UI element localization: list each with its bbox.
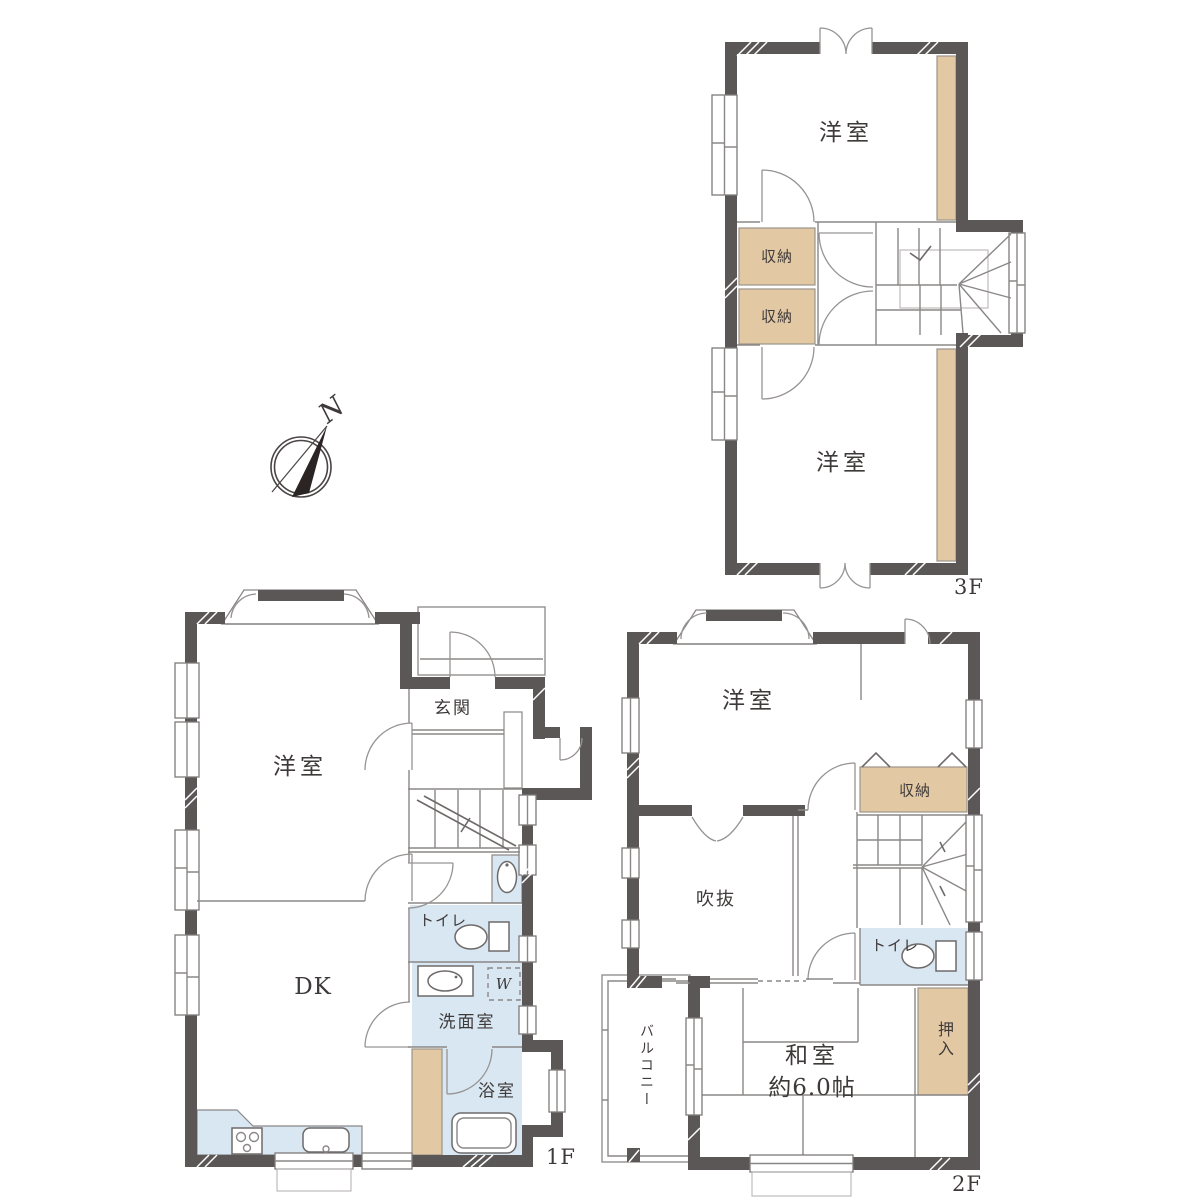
floor-3f-plan: [712, 28, 1025, 588]
2f-toilet-label: トイレ: [871, 935, 919, 956]
compass-icon: [271, 426, 331, 497]
3f-western-room-south-label: 洋室: [816, 443, 870, 477]
3f-floor-label: 3F: [954, 575, 984, 599]
1f-stairs: [408, 789, 522, 852]
2f-balcony-label: バルコニー: [636, 1024, 656, 1109]
2f-western-room-label: 洋室: [722, 681, 776, 715]
2f-japanese-room-label: 和室: [785, 1036, 839, 1070]
2f-closet-label: 押入: [932, 1021, 956, 1059]
1f-floor-label: 1F: [546, 1145, 576, 1169]
3f-storage-upper-label: 収納: [761, 246, 793, 267]
2f-storage-label: 収納: [899, 780, 931, 801]
floor-2f-plan: [602, 610, 982, 1196]
2f-stairs: [853, 812, 968, 928]
1f-washroom-label: 洗面室: [439, 1008, 496, 1033]
1f-dk-label: DK: [294, 974, 332, 1000]
2f-japanese-room-size-label: 約6.0帖: [768, 1068, 856, 1102]
2f-floor-label: 2F: [952, 1172, 982, 1196]
floorplan-canvas: N 洋室 収納 収納 洋室 3F 玄関 洋室 DK トイレ 洗面室 W 浴室 1…: [0, 0, 1200, 1200]
1f-toilet-label: トイレ: [419, 910, 467, 931]
3f-western-room-north-label: 洋室: [819, 113, 873, 147]
3f-double-doors: [820, 28, 872, 588]
3f-storage-lower-label: 収納: [761, 306, 793, 327]
3f-stairs: [876, 228, 1011, 335]
1f-washer-symbol: W: [496, 975, 512, 993]
2f-void-label: 吹抜: [696, 885, 736, 911]
1f-entrance-label: 玄関: [434, 694, 472, 719]
1f-western-room-label: 洋室: [273, 747, 327, 781]
1f-bathroom-label: 浴室: [478, 1077, 516, 1102]
floor-1f-plan: [175, 590, 592, 1191]
floorplan-drawing: [0, 0, 1200, 1200]
